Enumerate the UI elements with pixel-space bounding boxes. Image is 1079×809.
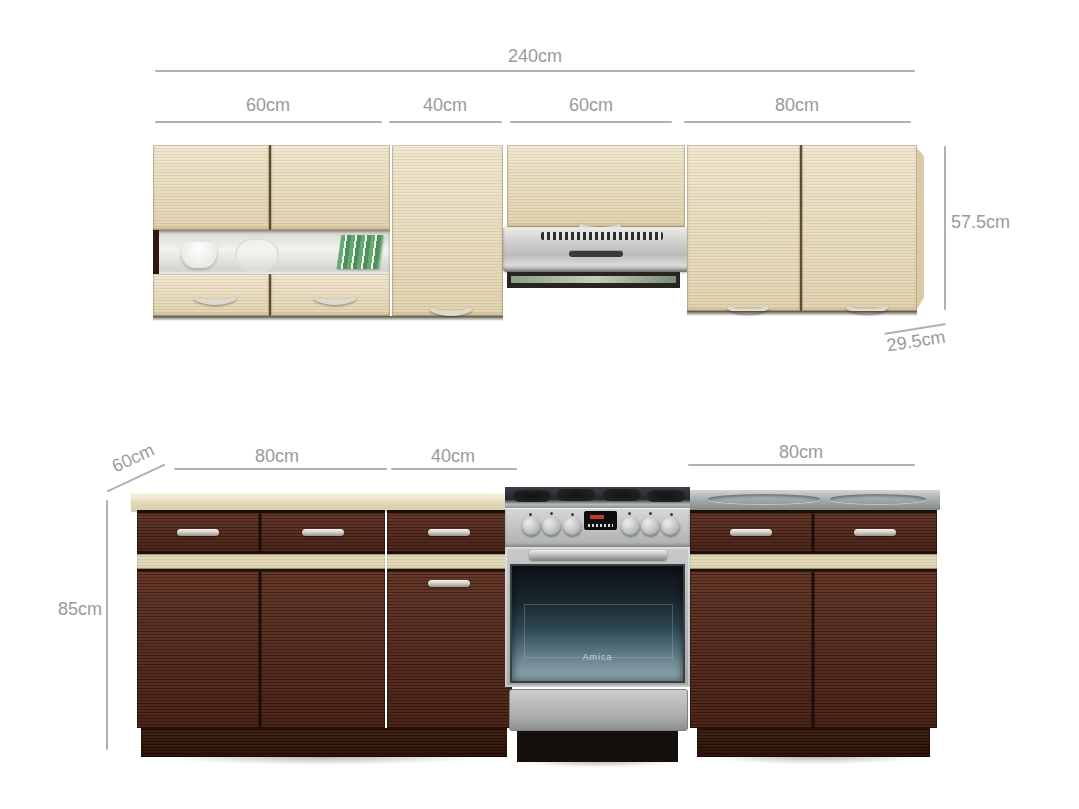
upper-total-width-label: 240cm (435, 46, 635, 66)
lower-height-label: 85cm (42, 599, 102, 619)
freestanding-cooker: Amica (505, 487, 690, 762)
control-panel (505, 508, 690, 547)
lower-segment-label-2: 40cm (398, 446, 508, 466)
cabinet-door (690, 571, 812, 728)
lower-height-dimension-line (106, 500, 108, 750)
control-knob (661, 517, 680, 536)
sink-bowl (830, 494, 926, 504)
handle (428, 529, 470, 536)
under-hood-recess (507, 272, 680, 288)
upper-segment-label-3: 60cm (536, 95, 646, 115)
gas-burner (603, 489, 641, 501)
lower-segment-line-1 (174, 468, 387, 470)
handle (177, 529, 219, 536)
upper-height-dimension-line (944, 146, 946, 310)
decor-strip (690, 554, 937, 569)
upper-segment-label-4: 80cm (742, 95, 852, 115)
upper-depth-label: 29.5cm (877, 325, 955, 357)
knob-marker (649, 512, 652, 515)
sink-drainer (708, 494, 820, 504)
oven-handle (529, 550, 667, 560)
kitchen-dimension-diagram: 240cm 60cm 40cm 60cm 80cm 57.5cm 29.5cm (0, 0, 1079, 809)
display-buttons (588, 524, 613, 527)
handle (730, 529, 772, 536)
wall-cabinet-80 (687, 145, 917, 311)
cabinet-door (137, 571, 259, 728)
lower-depth-label: 60cm (97, 434, 169, 482)
cabinet-door (802, 145, 917, 311)
cabinet-door (687, 145, 800, 311)
range-hood (503, 227, 689, 272)
gas-burner (513, 490, 551, 502)
handle (425, 291, 477, 316)
decor-strip (137, 554, 385, 569)
base-cabinet-sink-80 (690, 510, 937, 728)
cabinet-bottom-shadow (153, 316, 503, 321)
glass-shelf (511, 276, 676, 283)
cooker-display (584, 511, 617, 530)
gas-hob (505, 487, 690, 508)
lower-segment-label-1: 80cm (222, 446, 332, 466)
control-knob (641, 517, 660, 536)
hood-control-badge (569, 250, 623, 257)
floor-shadow (503, 761, 693, 770)
cabinet-door (271, 145, 390, 230)
gas-burner (647, 490, 685, 502)
wall-cabinet-hood-60 (507, 145, 685, 288)
glass-display-shelf (153, 230, 390, 274)
knob-marker (670, 513, 673, 516)
handle (854, 529, 896, 536)
plinth (697, 728, 930, 757)
gas-burner (557, 489, 595, 501)
plinth (141, 728, 507, 757)
cooker-brand: Amica (512, 652, 683, 662)
upper-total-dimension-line (155, 70, 915, 72)
cooker-plinth (517, 731, 678, 762)
upper-segment-line-1 (155, 121, 382, 123)
base-cabinet-80-left (137, 510, 385, 728)
oven-door: Amica (505, 547, 690, 687)
decor-strip (387, 554, 512, 569)
upper-segment-label-2: 40cm (390, 95, 500, 115)
handle (302, 529, 344, 536)
control-knob (542, 517, 561, 536)
upper-segment-line-3 (510, 121, 672, 123)
hood-vent-grille (541, 232, 663, 240)
floor-shadow (133, 757, 513, 768)
base-cabinet-40 (387, 510, 512, 728)
upper-segment-label-1: 60cm (213, 95, 323, 115)
display-digits (590, 515, 604, 519)
white-bowl (181, 242, 217, 268)
handle (189, 280, 241, 305)
knob-marker (529, 513, 532, 516)
upper-segment-line-2 (389, 121, 502, 123)
cabinet-door (153, 145, 269, 230)
storage-drawer (509, 689, 688, 731)
handle (309, 280, 361, 305)
knob-marker (550, 512, 553, 515)
control-knob (522, 517, 541, 536)
lower-segment-label-3: 80cm (746, 442, 856, 462)
cabinet-bottom-shadow (687, 311, 917, 316)
upper-segment-line-4 (684, 121, 911, 123)
wall-cabinet-40 (392, 145, 503, 316)
oven-window: Amica (510, 564, 685, 683)
floor-shadow (690, 757, 940, 767)
upper-height-label: 57.5cm (951, 212, 1031, 232)
cabinet-side-edge (153, 230, 159, 274)
control-knob (563, 517, 582, 536)
lower-segment-line-2 (391, 468, 517, 470)
cabinet-door (814, 571, 937, 728)
knob-marker (571, 513, 574, 516)
sink-countertop (690, 490, 940, 510)
knob-marker (628, 512, 631, 515)
oven-rack-reflection (524, 604, 673, 658)
handle (428, 580, 470, 587)
green-books (337, 235, 384, 269)
lower-segment-line-3 (688, 464, 915, 466)
cabinet-door (387, 571, 512, 728)
control-knob (621, 517, 640, 536)
cabinet-door (261, 571, 385, 728)
cabinet-side-panel (917, 148, 924, 309)
countertop (131, 493, 513, 511)
glass-pitcher (235, 238, 279, 273)
wall-cabinet-glass-60 (153, 145, 390, 316)
